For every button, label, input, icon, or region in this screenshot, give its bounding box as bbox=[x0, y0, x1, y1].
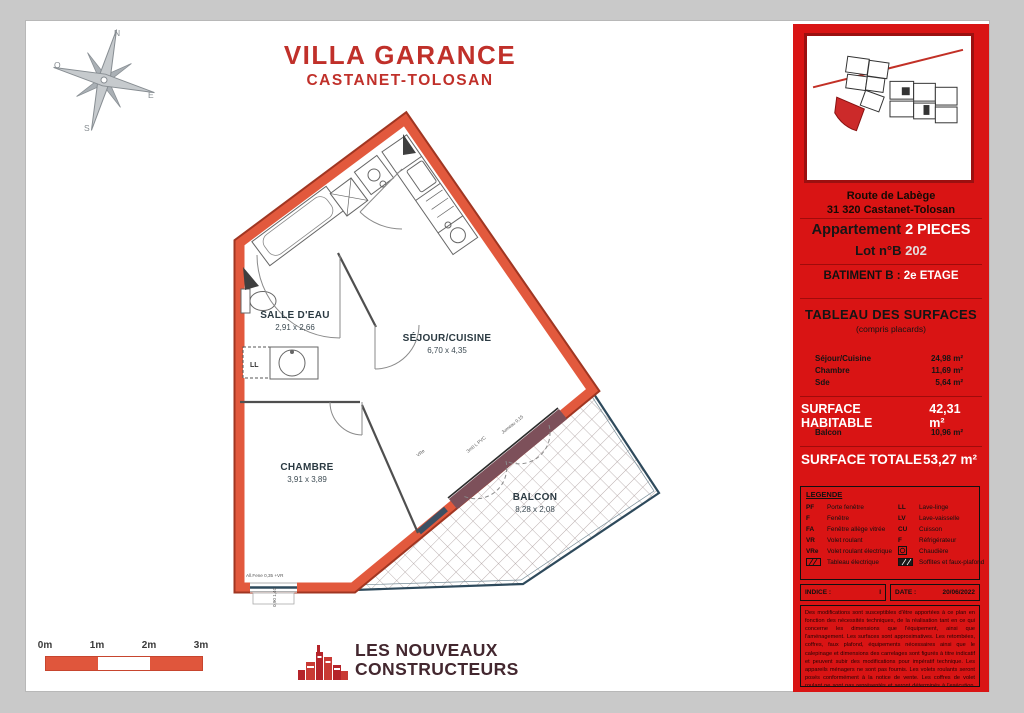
site-plan-box bbox=[804, 33, 974, 183]
date-box: DATE : 20/06/2022 bbox=[890, 584, 980, 601]
compass-n-label: N bbox=[114, 28, 120, 38]
ll-label: LL bbox=[250, 362, 259, 369]
room-label-chambre: CHAMBRE bbox=[280, 462, 333, 473]
divider bbox=[800, 264, 982, 265]
scale-bar bbox=[45, 656, 203, 671]
page: { "header": { "line1": "VILLA GARANCE", … bbox=[0, 0, 1024, 713]
legend-box: LEGENDE PFPorte fenêtre FFenêtre FAFenêt… bbox=[800, 486, 980, 580]
electrical-panel-icon bbox=[806, 558, 827, 568]
logo-line2: CONSTRUCTEURS bbox=[355, 660, 519, 679]
room-dims-balcon: 8,28 x 2,08 bbox=[515, 505, 555, 514]
project-title: VILLA GARANCE bbox=[120, 40, 680, 71]
floor-plan-drawing: SALLE D'EAU 2,91 x 2,66 SÉJOUR/CUISINE 6… bbox=[210, 105, 790, 630]
soffit-icon bbox=[898, 558, 919, 568]
compass-e-label: E bbox=[148, 90, 154, 100]
compass-o-label: O bbox=[54, 60, 61, 70]
info-panel: Route de Labège 31 320 Castanet-Tolosan … bbox=[793, 24, 989, 692]
room-dims-chambre: 3,91 x 3,89 bbox=[287, 475, 327, 484]
surface-habitable-row: SURFACE HABITABLE42,31 m² bbox=[801, 402, 977, 430]
surface-row: Sde5,64 m² bbox=[815, 378, 963, 389]
surface-table-title: TABLEAU DES SURFACES bbox=[793, 307, 989, 322]
builder-logo-icon bbox=[296, 640, 350, 684]
logo-line1: LES NOUVEAUX bbox=[355, 641, 519, 660]
divider bbox=[800, 446, 982, 447]
scale-label-2: 2m bbox=[142, 640, 156, 651]
lot-number: Lot n°B 202 bbox=[793, 243, 989, 258]
address-line2: 31 320 Castanet-Tolosan bbox=[793, 203, 989, 217]
room-label-salle-deau: SALLE D'EAU bbox=[260, 310, 330, 321]
surface-totale-row: SURFACE TOTALE53,27 m² bbox=[801, 452, 977, 467]
scale-label-1: 1m bbox=[90, 640, 104, 651]
indice-box: INDICE : I bbox=[800, 584, 886, 601]
room-dims-sejour: 6,70 x 4,35 bbox=[427, 346, 467, 355]
highlighted-lot bbox=[835, 97, 865, 131]
allege-annotation: All.Fene 0,35 +VR bbox=[246, 573, 284, 578]
legend-title: LEGENDE bbox=[806, 490, 842, 499]
surface-row: Chambre11,69 m² bbox=[815, 366, 963, 377]
project-city: CASTANET-TOLOSAN bbox=[120, 72, 680, 90]
divider bbox=[800, 218, 982, 219]
divider bbox=[800, 396, 982, 397]
boiler-icon bbox=[898, 546, 919, 557]
site-plan-map bbox=[807, 36, 971, 180]
room-label-balcon: BALCON bbox=[513, 492, 558, 503]
scale-label-0: 0m bbox=[38, 640, 52, 651]
compass-s-label: S bbox=[84, 123, 90, 133]
address-line1: Route de Labège bbox=[793, 189, 989, 203]
scale-label-3: 3m bbox=[194, 640, 208, 651]
building-floor: BATIMENT B : 2e ETAGE bbox=[793, 270, 989, 282]
window-dim-annotation: 0,90 1,40 bbox=[272, 587, 277, 607]
room-dims-salle-deau: 2,91 x 2,66 bbox=[275, 323, 315, 332]
disclaimer-text: Des modifications sont susceptibles d'êt… bbox=[800, 605, 980, 687]
legend-left-column: PFPorte fenêtre FFenêtre FAFenêtre allèg… bbox=[806, 502, 894, 568]
address: Route de Labège 31 320 Castanet-Tolosan bbox=[793, 189, 989, 218]
apartment-type: Appartement 2 PIECES bbox=[793, 222, 989, 238]
legend-right-column: LLLave-linge LVLave-vaisselle CUCuisson … bbox=[898, 502, 986, 568]
builder-logo-text: LES NOUVEAUX CONSTRUCTEURS bbox=[355, 641, 519, 679]
divider bbox=[800, 298, 982, 299]
balcony-surface-row: Balcon10,96 m² bbox=[815, 428, 963, 439]
surface-table-subtitle: (compris placards) bbox=[793, 324, 989, 334]
room-label-sejour: SÉJOUR/CUISINE bbox=[403, 331, 492, 344]
surface-row: Séjour/Cuisine24,98 m² bbox=[815, 354, 963, 365]
